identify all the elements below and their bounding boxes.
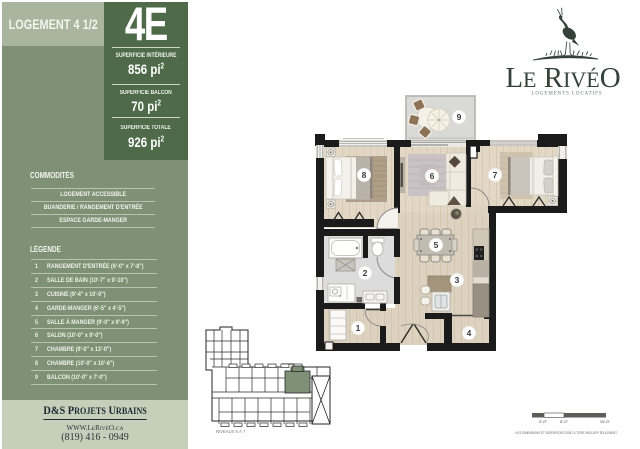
- svg-text:2'-0": 2'-0": [539, 419, 548, 424]
- svg-text:4: 4: [467, 328, 472, 338]
- svg-text:9: 9: [457, 112, 462, 122]
- svg-text:7: 7: [493, 170, 498, 180]
- svg-text:5: 5: [434, 240, 439, 250]
- svg-text:NIVEAUX 6 À 7: NIVEAUX 6 À 7: [216, 429, 246, 434]
- svg-text:8: 8: [362, 170, 367, 180]
- svg-text:10'-0": 10'-0": [600, 419, 611, 424]
- svg-text:5'-0": 5'-0": [560, 419, 569, 424]
- svg-text:2: 2: [363, 268, 368, 278]
- svg-text:3: 3: [455, 275, 460, 285]
- svg-text:*LES DIMENSIONS ET SUPERFICIES: *LES DIMENSIONS ET SUPERFICIES SONT À TI…: [515, 431, 618, 435]
- svg-text:1: 1: [356, 323, 361, 333]
- svg-text:6: 6: [430, 171, 435, 181]
